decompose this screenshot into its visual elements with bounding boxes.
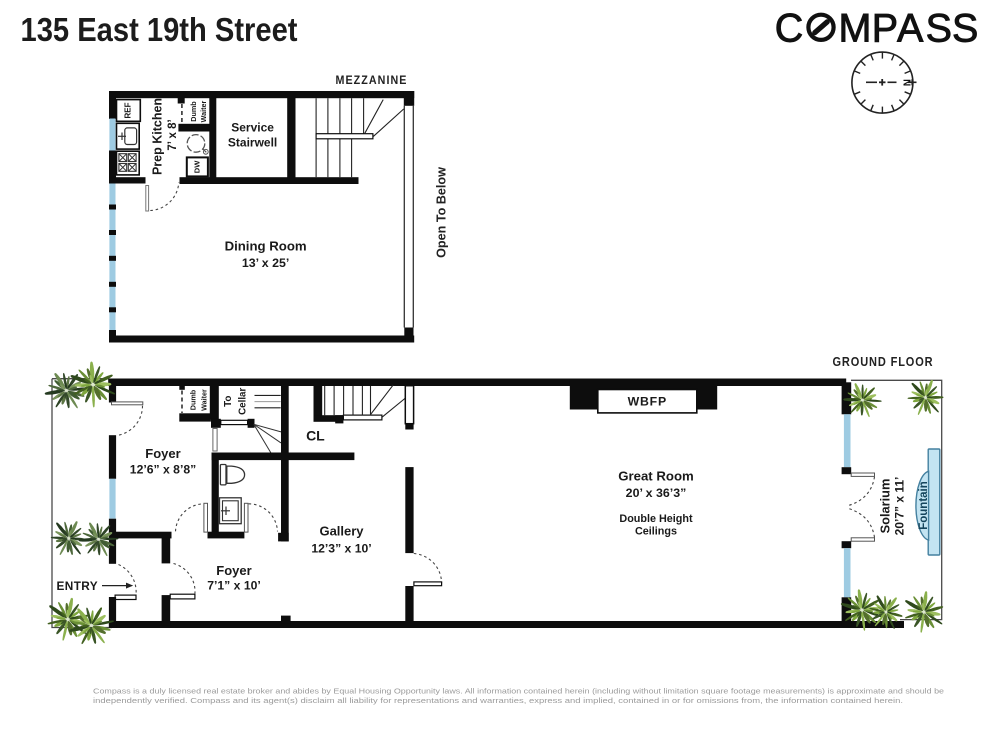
svg-text:REF: REF (123, 102, 132, 118)
svg-text:Foyer: Foyer (216, 563, 251, 578)
svg-text:Dining Room: Dining Room (225, 239, 307, 254)
svg-text:Waiter: Waiter (199, 389, 208, 411)
svg-text:S: S (926, 6, 952, 50)
svg-text:Cellar: Cellar (237, 388, 248, 415)
svg-text:WBFP: WBFP (628, 394, 667, 408)
svg-text:DW: DW (192, 160, 201, 173)
svg-text:To: To (223, 396, 234, 407)
svg-text:Dumb: Dumb (189, 101, 198, 122)
svg-text:Fountain: Fountain (918, 481, 930, 530)
svg-text:Prep Kitchen: Prep Kitchen (151, 98, 165, 175)
svg-text:C: C (775, 6, 804, 50)
svg-text:GROUND FLOOR: GROUND FLOOR (833, 355, 934, 369)
svg-text:12’3” x 10’: 12’3” x 10’ (311, 542, 371, 556)
svg-text:7’1” x 10’: 7’1” x 10’ (207, 579, 261, 593)
svg-text:Foyer: Foyer (145, 446, 180, 461)
svg-text:MEZZANINE: MEZZANINE (336, 73, 408, 87)
svg-text:Gallery: Gallery (319, 524, 364, 539)
svg-text:independently verified. Compas: independently verified. Compass and its … (93, 696, 903, 705)
svg-text:Open To Below: Open To Below (434, 167, 448, 258)
svg-text:N: N (900, 79, 911, 86)
svg-text:7’ x 8’: 7’ x 8’ (167, 119, 179, 150)
svg-text:13’ x 25’: 13’ x 25’ (242, 256, 290, 270)
svg-text:S: S (952, 6, 978, 50)
svg-text:Stairwell: Stairwell (228, 136, 277, 150)
svg-text:Waiter: Waiter (199, 100, 208, 122)
svg-text:12’6” x 8’8”: 12’6” x 8’8” (130, 463, 196, 477)
svg-text:Compass is a duly licensed rea: Compass is a duly licensed real estate b… (93, 687, 944, 696)
svg-text:20’7” x 11’: 20’7” x 11’ (893, 477, 907, 536)
svg-text:CL: CL (306, 428, 325, 444)
svg-text:Dumb: Dumb (189, 389, 198, 410)
svg-text:20’ x 36’3”: 20’ x 36’3” (626, 486, 687, 500)
svg-text:ENTRY: ENTRY (57, 579, 99, 593)
svg-text:135 East 19th Street: 135 East 19th Street (21, 12, 298, 49)
svg-text:Ceilings: Ceilings (635, 526, 677, 538)
svg-text:A: A (897, 6, 924, 50)
svg-text:Service: Service (231, 121, 274, 135)
svg-text:Solarium: Solarium (878, 479, 893, 534)
svg-text:P: P (872, 6, 898, 50)
svg-text:M: M (839, 6, 872, 50)
svg-text:Double Height: Double Height (619, 513, 693, 525)
svg-text:Great Room: Great Room (618, 469, 693, 484)
